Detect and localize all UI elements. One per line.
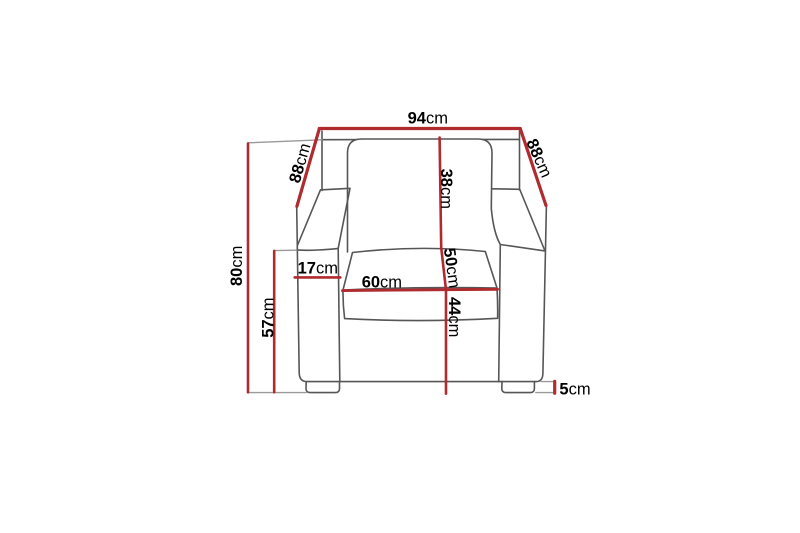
svg-text:17cm: 17cm	[298, 259, 338, 277]
svg-text:80cm: 80cm	[228, 246, 246, 286]
svg-text:94cm: 94cm	[408, 110, 448, 128]
svg-text:38cm: 38cm	[437, 169, 455, 209]
svg-text:5cm: 5cm	[559, 381, 590, 399]
svg-text:57cm: 57cm	[260, 297, 278, 337]
svg-text:88cm: 88cm	[522, 136, 555, 180]
svg-text:44cm: 44cm	[445, 297, 463, 337]
svg-text:60cm: 60cm	[362, 274, 402, 292]
